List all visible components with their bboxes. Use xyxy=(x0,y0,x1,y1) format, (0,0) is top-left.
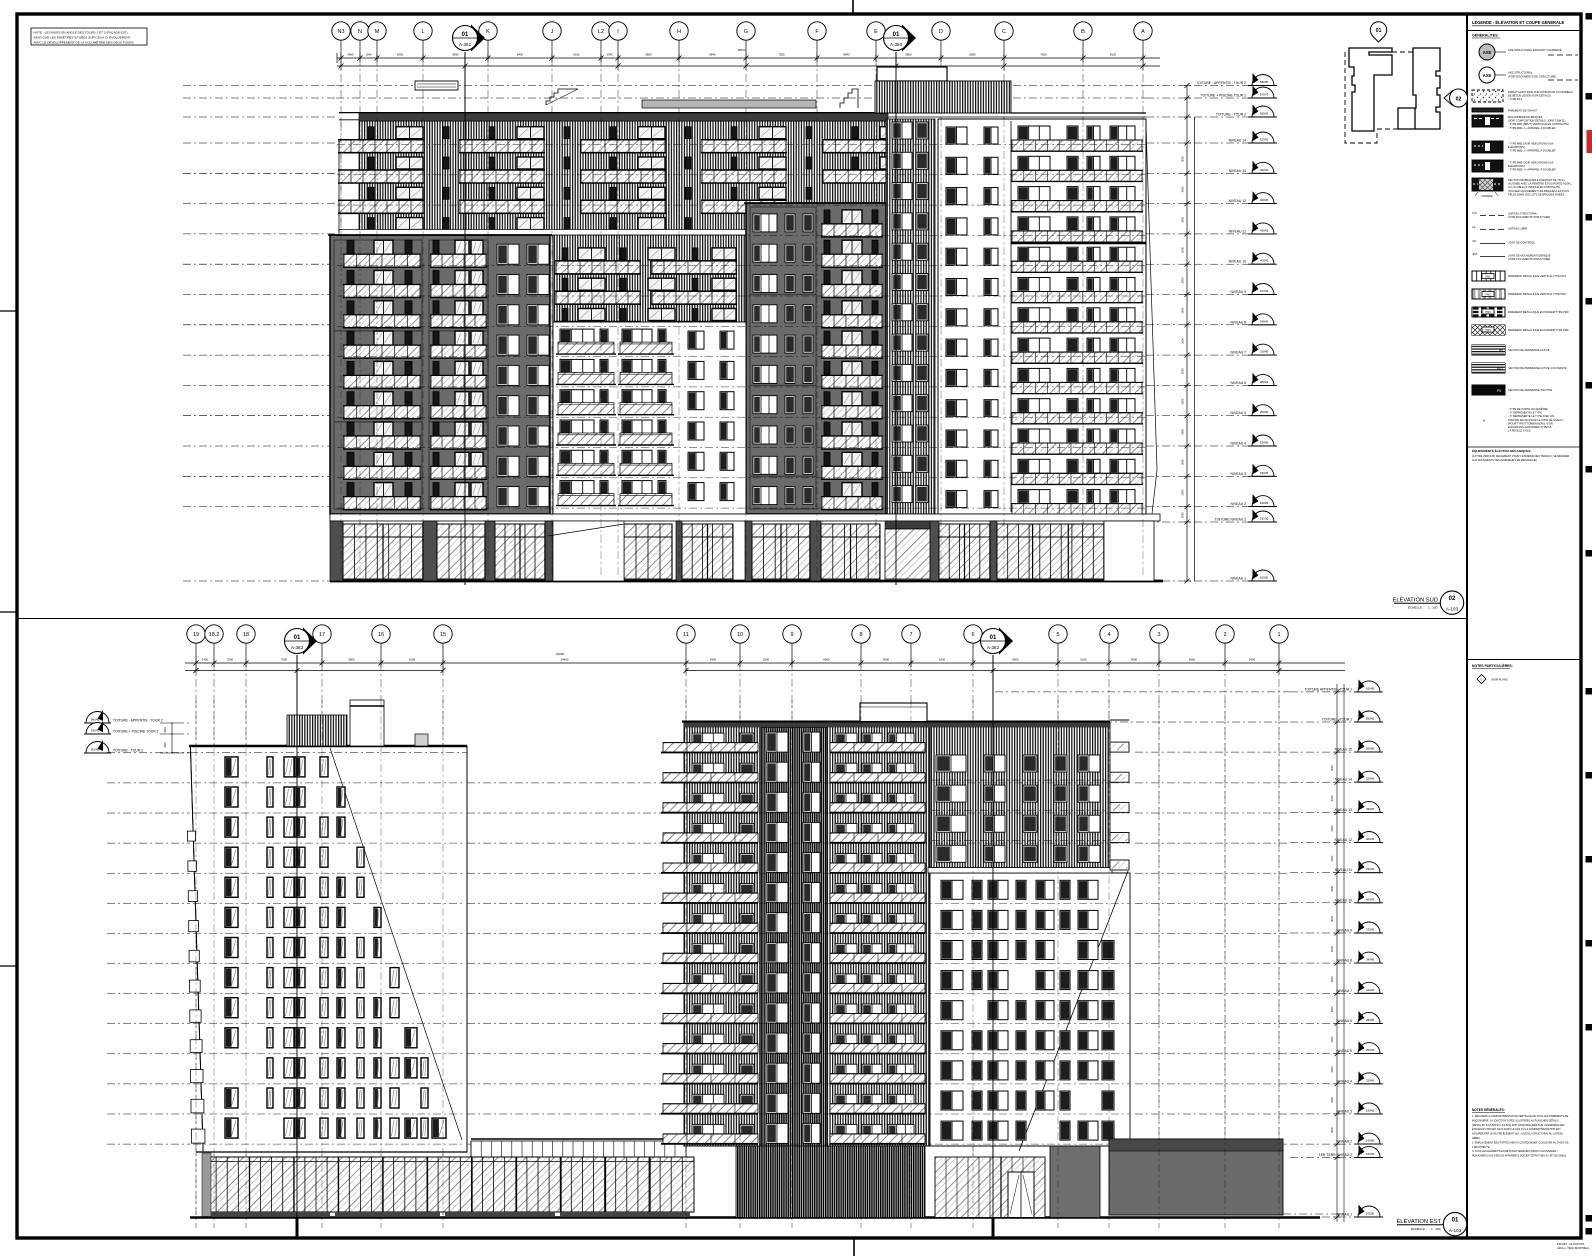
svg-text:TOITURE + PISCINE TOUR 2: TOITURE + PISCINE TOUR 2 xyxy=(113,730,159,734)
svg-text:5000: 5000 xyxy=(883,658,890,662)
svg-text:NIVEAU 2: NIVEAU 2 xyxy=(1337,1140,1353,1144)
svg-text:A-350: A-350 xyxy=(890,42,903,47)
svg-text:MAÇONNERIE. LA JONCTION TYPES: MAÇONNERIE. LA JONCTION TYPES ILLUSTRÉES… xyxy=(1472,1119,1559,1122)
svg-text:5800: 5800 xyxy=(645,53,652,57)
svg-text:3. TOUS LES ÉLÉMENTS EN BÉTON: 3. TOUS LES ÉLÉMENTS EN BÉTON EXTÉRIEURS… xyxy=(1472,1150,1558,1153)
svg-text:NIVEAU 4: NIVEAU 4 xyxy=(1231,442,1247,446)
svg-text:3465: 3465 xyxy=(347,53,354,57)
svg-text:3000: 3000 xyxy=(1330,765,1334,771)
svg-text:ÉLÉVATION SUD: ÉLÉVATION SUD xyxy=(1392,597,1438,604)
svg-text:52045: 52045 xyxy=(1260,138,1269,142)
svg-text:34050: 34050 xyxy=(556,652,565,656)
svg-text:PM1: PM1 xyxy=(1486,276,1492,279)
svg-text:UTILISER UNIQUEMENT LES BRIQUE: UTILISER UNIQUEMENT LES BRIQUES LES PLUS xyxy=(1508,189,1569,193)
svg-text:K: K xyxy=(486,29,490,35)
svg-text:28045: 28045 xyxy=(1260,380,1269,384)
svg-text:17: 17 xyxy=(319,632,325,638)
svg-text:SUFFIXE SELON POUR LE TYPE DE: SUFFIXE SELON POUR LE TYPE DE NIVEAU xyxy=(1508,418,1563,422)
svg-text:SECTION DE BRIQUES EN RETRAIT: SECTION DE BRIQUES EN RETRAIT DE 70mm xyxy=(1508,178,1565,182)
svg-text:55045: 55045 xyxy=(1366,747,1375,751)
svg-text:- TYPE MB2 (VOIR INDICATIONS: - TYPE MB2 (VOIR INDICATIONS AUX xyxy=(1508,142,1554,146)
svg-text:NIVEAU 11: NIVEAU 11 xyxy=(1335,868,1352,872)
svg-text:NIVEAU 4: NIVEAU 4 xyxy=(1337,1079,1353,1083)
svg-text:A-103: A-103 xyxy=(1449,1228,1462,1233)
svg-text:NOTE : LES MURS EN ANGLE DES T: NOTE : LES MURS EN ANGLE DES TOURS 1 ET … xyxy=(34,31,128,35)
svg-text:LIBRE).: LIBRE). xyxy=(1472,1137,1481,1140)
svg-text:(POUR TYPE ET DIMENSIONS, VOIR: (POUR TYPE ET DIMENSIONS, VOIR xyxy=(1508,421,1553,425)
svg-text:3000: 3000 xyxy=(1181,512,1185,518)
svg-text:22045: 22045 xyxy=(1260,441,1269,445)
svg-text:- TYPE MB2-J + APPAREIL À DOU: - TYPE MB2-J + APPAREIL À DOUBLER xyxy=(1508,149,1556,153)
svg-text:L/L: L/L xyxy=(1472,225,1477,229)
svg-text:NIVEAU 8: NIVEAU 8 xyxy=(1231,320,1247,324)
svg-text:7925: 7925 xyxy=(778,53,785,57)
svg-text:NIVEAU 5: NIVEAU 5 xyxy=(1337,1049,1353,1053)
svg-text:6200: 6200 xyxy=(409,658,416,662)
svg-text:1 : 150: 1 : 150 xyxy=(1431,1227,1441,1231)
svg-text:H: H xyxy=(677,29,681,35)
svg-text:5200: 5200 xyxy=(763,658,770,662)
svg-text:1400: 1400 xyxy=(202,658,209,662)
svg-text:VARIABLE: VARIABLE xyxy=(1481,195,1493,198)
svg-text:NIVEAU 1: NIVEAU 1 xyxy=(1337,1213,1353,1217)
svg-text:02: 02 xyxy=(1449,596,1456,602)
svg-text:57070: 57070 xyxy=(1260,93,1269,97)
svg-text:8840: 8840 xyxy=(709,53,716,57)
svg-text:3000: 3000 xyxy=(1330,1036,1334,1042)
svg-text:46045: 46045 xyxy=(1260,198,1269,202)
svg-text:(DÉTAIL MY 53.A-505 ET LA A-50: (DÉTAIL MY 53.A-505 ET LA A-502) DOIT ÊT… xyxy=(1472,1124,1565,1127)
svg-text:15205: 15205 xyxy=(1366,1152,1375,1156)
svg-text:PM3: PM3 xyxy=(1486,311,1492,314)
svg-text:3000: 3000 xyxy=(1180,368,1184,374)
svg-text:NIVEAU 14: NIVEAU 14 xyxy=(1229,139,1246,143)
svg-text:56045: 56045 xyxy=(91,718,100,722)
svg-text:ÉCHELLE :: ÉCHELLE : xyxy=(1411,1226,1427,1231)
svg-text:ASSURÉE PAR UN AUTRE ÉLÉMENT (: ASSURÉE PAR UN AUTRE ÉLÉMENT (EX.: LINTE… xyxy=(1472,1133,1563,1136)
svg-text:3000: 3000 xyxy=(1330,1066,1334,1072)
svg-text:58045: 58045 xyxy=(1366,717,1375,721)
svg-text:TOITURE - TOUR 2: TOITURE - TOUR 2 xyxy=(113,749,143,753)
svg-text:3000: 3000 xyxy=(1181,216,1185,222)
svg-text:86570: 86570 xyxy=(738,48,747,52)
svg-text:PM2: PM2 xyxy=(1486,294,1492,297)
svg-text:NIVEAU 1: NIVEAU 1 xyxy=(1231,577,1247,581)
svg-text:M: M xyxy=(375,29,380,35)
svg-text:25045: 25045 xyxy=(1260,410,1269,414)
svg-text:3000: 3000 xyxy=(1181,489,1185,495)
svg-text:24600: 24600 xyxy=(561,658,569,662)
svg-text:49045: 49045 xyxy=(1260,168,1269,172)
svg-text:ENDUIT ACRYLIQUE SUR FONDATION: ENDUIT ACRYLIQUE SUR FONDATION OU PANNEA… xyxy=(1508,90,1573,94)
svg-text:(À TITRE INDICATIF SEULEMENT,: (À TITRE INDICATIF SEULEMENT, POUR L'ÉTE… xyxy=(1472,455,1569,458)
svg-text:52045: 52045 xyxy=(1366,777,1375,781)
svg-text:NIVEAU 3: NIVEAU 3 xyxy=(1337,1109,1353,1113)
svg-text:3000: 3000 xyxy=(1330,976,1334,982)
svg-text:L'ARCHITECTE.: L'ARCHITECTE. xyxy=(1472,1146,1490,1149)
svg-text:(VOIR DOCUMENTS STRUCTURE): (VOIR DOCUMENTS STRUCTURE) xyxy=(1508,257,1550,261)
svg-text:3000: 3000 xyxy=(1330,795,1334,801)
svg-text:22045: 22045 xyxy=(1366,1078,1375,1082)
svg-text:55045: 55045 xyxy=(1260,112,1269,116)
svg-text:15: 15 xyxy=(440,632,446,638)
svg-text:G: G xyxy=(744,29,748,35)
svg-text:TOITURE - TOUR 2: TOITURE - TOUR 2 xyxy=(1216,113,1246,117)
svg-text:8840: 8840 xyxy=(843,53,850,57)
svg-text:58045: 58045 xyxy=(1260,80,1269,84)
svg-text:VOIR PLANS: VOIR PLANS xyxy=(1491,678,1508,682)
svg-text:- TYPE MB3 (VOIR INDICATIONS: - TYPE MB3 (VOIR INDICATIONS AUX xyxy=(1508,161,1554,165)
svg-text:L2: L2 xyxy=(598,29,604,35)
svg-text:7600: 7600 xyxy=(281,658,288,662)
svg-text:NIVEAU 6: NIVEAU 6 xyxy=(1231,381,1247,385)
svg-text:PLANCHERS) AUX-DESSUS APPARENT: PLANCHERS) AUX-DESSUS APPARENTS DOIVENT … xyxy=(1472,1155,1567,1158)
svg-text:- TYPE MB1-J + APPAREIL À DOU: - TYPE MB1-J + APPAREIL À DOUBLER xyxy=(1508,126,1556,130)
svg-text:18.2: 18.2 xyxy=(209,632,220,638)
svg-text:5800: 5800 xyxy=(905,53,912,57)
svg-text:8500: 8500 xyxy=(1012,658,1019,662)
svg-text:4: 4 xyxy=(1107,632,1110,638)
svg-text:TOITURE - APPENTIS - TOUR 2: TOITURE - APPENTIS - TOUR 2 xyxy=(1196,81,1246,85)
svg-text:NIVEAU 2: NIVEAU 2 xyxy=(1231,502,1247,506)
svg-text:TOITURE NIVEAU 2: TOITURE NIVEAU 2 xyxy=(1215,518,1246,522)
svg-text:43045: 43045 xyxy=(1260,228,1269,232)
svg-text:49045: 49045 xyxy=(1366,807,1375,811)
svg-text:2: 2 xyxy=(1223,632,1226,638)
svg-text:A-363: A-363 xyxy=(291,645,304,650)
svg-text:LINTEAU LIBRE: LINTEAU LIBRE xyxy=(1508,227,1527,231)
svg-text:A-362: A-362 xyxy=(987,645,1000,650)
svg-text:3000: 3000 xyxy=(1180,307,1184,313)
svg-text:NIVEAU 7: NIVEAU 7 xyxy=(1231,351,1247,355)
svg-text:5: 5 xyxy=(1056,632,1059,638)
svg-text:5000: 5000 xyxy=(1131,658,1138,662)
svg-text:3025: 3025 xyxy=(164,742,167,748)
svg-text:31045: 31045 xyxy=(1366,988,1375,992)
svg-text:L/S: L/S xyxy=(1472,211,1477,215)
svg-text:SECTION DE PERSIENNE ACTIVE CO: SECTION DE PERSIENNE ACTIVE COUVRANTE xyxy=(1508,366,1567,370)
svg-text:53070: 53070 xyxy=(91,729,100,733)
svg-text:15235: 15235 xyxy=(1260,517,1269,521)
svg-text:3000: 3000 xyxy=(1180,398,1184,404)
svg-text:11: 11 xyxy=(683,632,689,638)
svg-text:3000: 3000 xyxy=(1181,277,1185,283)
svg-text:C: C xyxy=(1002,29,1006,35)
svg-text:(VOIR DOCUMENTS DE STRUCTURE): (VOIR DOCUMENTS DE STRUCTURE) xyxy=(1508,75,1556,79)
svg-text:7: 7 xyxy=(909,632,912,638)
svg-text:5100: 5100 xyxy=(1080,658,1087,662)
svg-text:3000: 3000 xyxy=(1180,186,1184,192)
svg-text:1: 1 xyxy=(1277,632,1280,638)
svg-text:8120: 8120 xyxy=(1110,53,1117,57)
svg-text:37045: 37045 xyxy=(1366,928,1375,932)
svg-text:43045: 43045 xyxy=(1366,867,1375,871)
svg-text:3000: 3000 xyxy=(1330,946,1334,952)
svg-text:3000: 3000 xyxy=(1181,428,1185,434)
svg-text:LINTEAU STRUCTURAL: LINTEAU STRUCTURAL xyxy=(1508,212,1538,216)
svg-text:(VOIR DOCUMENTS STRUCTURE): (VOIR DOCUMENTS STRUCTURE) xyxy=(1508,215,1550,219)
svg-text:61045: 61045 xyxy=(1366,686,1375,690)
svg-text:16: 16 xyxy=(378,632,384,638)
svg-text:J: J xyxy=(551,29,554,35)
svg-text:JOINT DE MOUVEMENT/SISMIQUE: JOINT DE MOUVEMENT/SISMIQUE xyxy=(1508,254,1551,258)
svg-text:NIVEAU 9: NIVEAU 9 xyxy=(1337,929,1353,933)
svg-text:NIVEAU 5: NIVEAU 5 xyxy=(1231,411,1247,415)
svg-text:9: 9 xyxy=(790,632,793,638)
svg-text:31045: 31045 xyxy=(1260,350,1269,354)
svg-text:01: 01 xyxy=(294,635,301,641)
svg-text:TOITURE - APPENTIS - TOUR 2: TOITURE - APPENTIS - TOUR 2 xyxy=(113,719,163,723)
svg-text:3000: 3000 xyxy=(1330,915,1334,921)
svg-text:ÉCHELLE :: ÉCHELLE : xyxy=(1408,605,1424,610)
svg-text:8: 8 xyxy=(859,632,862,638)
svg-text:25045: 25045 xyxy=(1366,1048,1375,1052)
svg-text:L: L xyxy=(421,29,424,35)
svg-text:3000: 3000 xyxy=(1330,1127,1334,1133)
svg-text:1ER TERR NIVEAU 2: 1ER TERR NIVEAU 2 xyxy=(1319,1153,1352,1157)
svg-text:3000: 3000 xyxy=(1330,825,1334,831)
svg-text:3000: 3000 xyxy=(1180,459,1184,465)
svg-text:NIVEAU 3: NIVEAU 3 xyxy=(1231,472,1247,476)
svg-text:PAREMENT DE GRANIT: PAREMENT DE GRANIT xyxy=(1508,109,1537,113)
svg-text:3000: 3000 xyxy=(1181,247,1185,253)
svg-text:PROJET : LE DUPONT: PROJET : LE DUPONT xyxy=(1557,1242,1585,1246)
svg-text:PA2: PA2 xyxy=(1497,367,1503,371)
svg-text:TOITURE + PISCINE TOUR 2: TOITURE + PISCINE TOUR 2 xyxy=(1200,94,1246,98)
svg-text:10000: 10000 xyxy=(1366,1212,1375,1216)
svg-text:LA FEUILLE A-601): LA FEUILLE A-601) xyxy=(1508,429,1531,433)
svg-text:40045: 40045 xyxy=(1260,259,1269,263)
svg-text:A: A xyxy=(1141,29,1145,35)
svg-text:6400: 6400 xyxy=(517,53,524,57)
svg-text:50045: 50045 xyxy=(91,748,100,752)
svg-text:AXE STRUCTURAL: AXE STRUCTURAL xyxy=(1508,71,1533,75)
svg-text:8280: 8280 xyxy=(969,53,976,57)
svg-text:A-103: A-103 xyxy=(1446,607,1459,612)
svg-text:SECTION DE PERSIENNE INACTIVE: SECTION DE PERSIENNE INACTIVE xyxy=(1508,388,1553,392)
svg-text:J/M: J/M xyxy=(1472,252,1477,256)
svg-text:MAÇONNERIE DE BRIQUES: MAÇONNERIE DE BRIQUES xyxy=(1508,115,1543,119)
svg-text:6900: 6900 xyxy=(823,658,830,662)
svg-text:5800: 5800 xyxy=(348,658,355,662)
svg-text:34045: 34045 xyxy=(1260,319,1269,323)
svg-text:8690: 8690 xyxy=(452,53,459,57)
svg-text:NIVEAU 7: NIVEAU 7 xyxy=(1337,989,1353,993)
svg-text:SECTION DE PERSIENNE ACTIVE: SECTION DE PERSIENNE ACTIVE xyxy=(1508,348,1550,352)
svg-text:ÉQUIPEMENTS ÉLECTRO-MÉCANIQUES: ÉQUIPEMENTS ÉLECTRO-MÉCANIQUES: xyxy=(1472,448,1531,453)
svg-text:01: 01 xyxy=(893,32,900,38)
svg-text:NOTES GÉNÉRALES:: NOTES GÉNÉRALES: xyxy=(1472,1107,1505,1112)
svg-text:3000: 3000 xyxy=(1330,1096,1334,1102)
svg-text:18: 18 xyxy=(243,632,249,638)
svg-text:5915: 5915 xyxy=(573,53,580,57)
svg-text:- TYPE MB3-J + APPAREIL À DOU: - TYPE MB3-J + APPAREIL À DOUBLER xyxy=(1508,168,1556,172)
svg-text:19045: 19045 xyxy=(1260,471,1269,475)
svg-text:40045: 40045 xyxy=(1366,897,1375,901)
svg-text:3000: 3000 xyxy=(1330,885,1334,891)
svg-text:7620: 7620 xyxy=(1040,53,1047,57)
svg-text:NOTES PARTICULIÈRES:: NOTES PARTICULIÈRES: xyxy=(1472,663,1513,668)
svg-text:ÉTAGES DU PROJET SAUF DANS LE: ÉTAGES DU PROJET SAUF DANS LE CAS OÙ LA … xyxy=(1472,1128,1561,1131)
svg-text:AUX DOCUMENTS DES INGÉNIEURS E: AUX DOCUMENTS DES INGÉNIEURS EN MÉCANIQU… xyxy=(1472,459,1537,462)
svg-text:6095: 6095 xyxy=(397,53,404,57)
svg-text:1340: 1340 xyxy=(606,53,613,57)
svg-text:34045: 34045 xyxy=(1366,958,1375,962)
svg-text:01: 01 xyxy=(990,635,997,641)
svg-text:3: 3 xyxy=(1157,632,1160,638)
svg-text:1. RÉALISER LA COMPARTIMENTAT: 1. RÉALISER LA COMPARTIMENTATION VERTICA… xyxy=(1472,1115,1569,1118)
svg-text:N: N xyxy=(358,29,362,35)
svg-text:NIVEAU 12: NIVEAU 12 xyxy=(1229,199,1246,203)
svg-text:AXE: AXE xyxy=(1483,50,1492,55)
svg-text:19: 19 xyxy=(193,632,199,638)
svg-text:AINSI QUE LES FENÊTRES SITUÉES: AINSI QUE LES FENÊTRES SITUÉES SUR CEUX-… xyxy=(34,35,131,40)
svg-text:- TYPE EA1: - TYPE EA1 xyxy=(1508,97,1522,101)
svg-text:3000: 3000 xyxy=(1181,156,1185,162)
svg-text:2. EMPLACEMENT DES PORTES AIN: 2. EMPLACEMENT DES PORTES AINSI À COORDO… xyxy=(1472,1141,1569,1144)
svg-text:NIVEAU 11: NIVEAU 11 xyxy=(1229,229,1246,233)
svg-text:P3: P3 xyxy=(1497,389,1501,393)
svg-text:3000: 3000 xyxy=(1181,338,1185,344)
svg-text:1340: 1340 xyxy=(365,53,372,57)
svg-text:6: 6 xyxy=(971,632,974,638)
svg-text:5400: 5400 xyxy=(1249,658,1256,662)
svg-text:3000: 3000 xyxy=(1330,1006,1334,1012)
svg-text:02: 02 xyxy=(1456,96,1462,102)
svg-text:6200: 6200 xyxy=(939,658,946,662)
svg-text:16045: 16045 xyxy=(1260,501,1269,505)
svg-text:B: B xyxy=(1081,29,1085,35)
svg-text:GÉNÉRALITÉS:: GÉNÉRALITÉS: xyxy=(1472,33,1499,38)
svg-text:NIVEAU 9: NIVEAU 9 xyxy=(1231,290,1247,294)
svg-text:3000: 3000 xyxy=(1330,855,1334,861)
svg-text:D: D xyxy=(939,29,943,35)
svg-text:16045: 16045 xyxy=(1366,1139,1375,1143)
svg-text:1 : 150: 1 : 150 xyxy=(1428,606,1438,610)
svg-text:A-351: A-351 xyxy=(459,42,472,47)
svg-text:LÉGENDE - ÉLÉVATION ET COUPE G: LÉGENDE - ÉLÉVATION ET COUPE GÉNÉRALE xyxy=(1472,20,1564,25)
svg-text:10000: 10000 xyxy=(1260,576,1269,580)
svg-text:NIVEAU 10: NIVEAU 10 xyxy=(1229,260,1246,264)
svg-text:28045: 28045 xyxy=(1366,1018,1375,1022)
svg-text:AXE: AXE xyxy=(1483,73,1492,78)
svg-text:37045: 37045 xyxy=(1260,289,1269,293)
svg-text:NIVEAU 8: NIVEAU 8 xyxy=(1337,959,1353,963)
svg-text:AVEC LE DÉVELOPPEMENT DE LA VO: AVEC LE DÉVELOPPEMENT DE LA VOLUMÉTRIE D… xyxy=(34,39,135,44)
svg-text:E: E xyxy=(874,29,878,35)
svg-text:6600: 6600 xyxy=(1189,658,1196,662)
svg-text:3200: 3200 xyxy=(227,658,234,662)
svg-text:ÉLÉVATION EST: ÉLÉVATION EST xyxy=(1396,1218,1441,1225)
svg-text:N3: N3 xyxy=(337,29,344,35)
svg-text:46045: 46045 xyxy=(1366,837,1375,841)
svg-text:TOITURE APPENTIS - TOUR 1: TOITURE APPENTIS - TOUR 1 xyxy=(1304,687,1352,691)
svg-text:01: 01 xyxy=(1376,28,1382,34)
svg-text:NIVEAU 13: NIVEAU 13 xyxy=(1229,169,1246,173)
svg-text:19045: 19045 xyxy=(1366,1108,1375,1112)
svg-text:10: 10 xyxy=(737,632,743,638)
svg-text:PM4: PM4 xyxy=(1486,329,1492,332)
svg-text:5400: 5400 xyxy=(710,658,717,662)
svg-text:NIVEAU 6: NIVEAU 6 xyxy=(1337,1019,1353,1023)
svg-text:3025: 3025 xyxy=(164,727,167,733)
svg-text:01: 01 xyxy=(1452,1218,1459,1224)
svg-text:01: 01 xyxy=(462,32,469,38)
